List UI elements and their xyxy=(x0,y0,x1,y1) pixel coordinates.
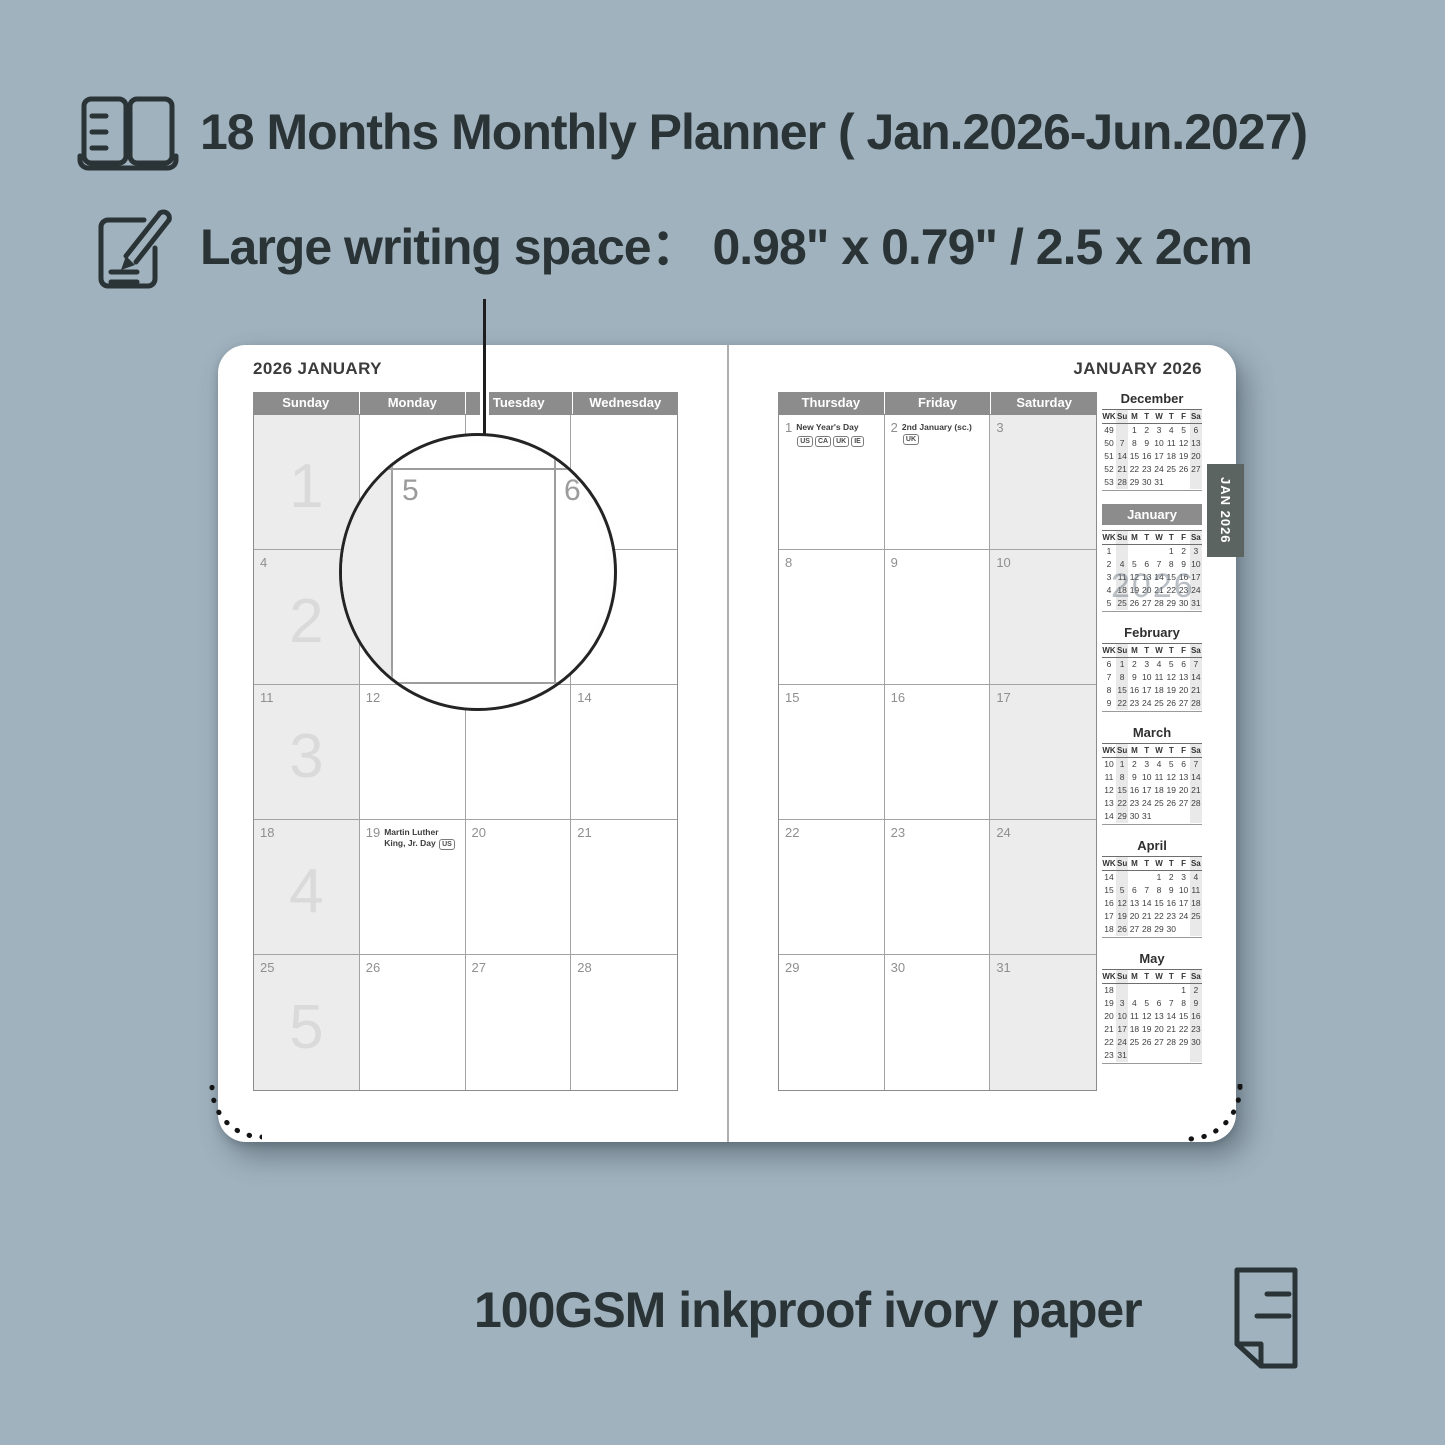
mini-day-cell: 4 xyxy=(1153,758,1165,771)
mini-week-row: 15567891011 xyxy=(1102,884,1202,897)
mini-week-row: 18 12 xyxy=(1102,984,1202,997)
calendar-cell: 9 xyxy=(885,550,991,685)
mini-day-cell: 29 xyxy=(1153,923,1165,936)
mini-day-cell xyxy=(1141,1049,1153,1062)
mini-day-cell: 28 xyxy=(1190,697,1202,710)
mini-weekday-label: M xyxy=(1128,410,1140,423)
mini-weekday-label: F xyxy=(1177,970,1189,983)
mini-weekday-label: T xyxy=(1141,857,1153,870)
mini-week-row: 5221222324252627 xyxy=(1102,463,1202,476)
holiday-badges: UK xyxy=(902,433,920,443)
mini-week-row: 2010111213141516 xyxy=(1102,1010,1202,1023)
mini-day-cell: 9 xyxy=(1165,884,1177,897)
mini-weekday-label: WK xyxy=(1102,857,1116,870)
mini-day-cell: 16 xyxy=(1165,897,1177,910)
mini-day-cell: 4 xyxy=(1128,997,1140,1010)
country-badge: UK xyxy=(903,434,919,445)
mini-day-cell: 24 xyxy=(1153,463,1165,476)
mini-weekday-label: Su xyxy=(1116,857,1128,870)
holiday-name: Martin Luther King, Jr. Day xyxy=(384,827,438,848)
mini-day-cell: 25 xyxy=(1165,463,1177,476)
mini-weekday-label: F xyxy=(1177,744,1189,757)
date-number: 1 xyxy=(785,420,792,435)
day-header-cell: Monday xyxy=(360,392,466,414)
mini-weekday-label: Su xyxy=(1116,970,1128,983)
holiday-name: 2nd January (sc.) xyxy=(902,422,972,432)
mini-day-cell: 14 xyxy=(1190,671,1202,684)
mini-day-cell: 1 xyxy=(1128,424,1140,437)
mini-day-cell: 19 xyxy=(1141,1023,1153,1036)
right-page-title: JANUARY 2026 xyxy=(778,359,1202,379)
mini-day-cell: 10 xyxy=(1141,671,1153,684)
calendar-cell: 19Martin Luther King, Jr. Day US xyxy=(360,820,466,955)
date-number: 23 xyxy=(891,825,905,840)
mini-day-cell: 2 xyxy=(1177,545,1189,558)
mini-week-row: 815161718192021 xyxy=(1102,684,1202,697)
cell-content: 8 xyxy=(779,550,884,570)
date-number: 26 xyxy=(366,960,380,975)
mini-day-cell: 16 xyxy=(1190,1010,1202,1023)
mini-month-title: May xyxy=(1102,951,1202,966)
right-month-grid: ThursdayFridaySaturday 1New Year's DayUS… xyxy=(778,392,1097,1091)
mini-weekday-label: W xyxy=(1153,644,1165,657)
cell-content: 22nd January (sc.) UK xyxy=(885,415,990,445)
mini-day-cell: 14 xyxy=(1141,897,1153,910)
mini-day-cell xyxy=(1128,545,1140,558)
mini-weekday-label: T xyxy=(1141,970,1153,983)
cell-content: 23 xyxy=(885,820,990,840)
mini-week-number: 8 xyxy=(1102,684,1116,697)
mini-week-number: 16 xyxy=(1102,897,1116,910)
mini-day-cell xyxy=(1190,1049,1202,1062)
mini-day-cell: 24 xyxy=(1116,1036,1128,1049)
mini-day-cell xyxy=(1153,1049,1165,1062)
mini-day-cell xyxy=(1165,476,1177,489)
mini-day-cell: 23 xyxy=(1141,463,1153,476)
mini-day-cell: 9 xyxy=(1128,771,1140,784)
cell-content: 15 xyxy=(779,685,884,705)
mini-month-grid: WKSuMTWTFSa49 12345650789101112135114151… xyxy=(1102,409,1202,491)
calendar-cell: 22nd January (sc.) UK xyxy=(885,415,991,550)
mini-day-cell xyxy=(1141,545,1153,558)
mini-day-cell: 19 xyxy=(1177,450,1189,463)
mini-day-cell: 15 xyxy=(1153,897,1165,910)
date-number: 30 xyxy=(891,960,905,975)
mini-month: AprilWKSuMTWTFSa14 123415567891011161213… xyxy=(1102,838,1202,938)
mini-day-cell: 12 xyxy=(1165,771,1177,784)
mini-day-cell: 26 xyxy=(1141,1036,1153,1049)
mini-week-row: 2331 xyxy=(1102,1049,1202,1062)
mini-day-cell: 2 xyxy=(1128,758,1140,771)
mini-day-cell: 31 xyxy=(1116,1049,1128,1062)
mini-weekday-label: WK xyxy=(1102,970,1116,983)
calendar-cell: 15 xyxy=(779,685,885,820)
mini-day-cell: 23 xyxy=(1128,697,1140,710)
mini-day-cell: 1 xyxy=(1116,758,1128,771)
mini-day-cell: 5 xyxy=(1177,424,1189,437)
mini-week-row: 193456789 xyxy=(1102,997,1202,1010)
mini-month-title: February xyxy=(1102,625,1202,640)
mini-day-cell: 12 xyxy=(1141,1010,1153,1023)
mini-day-cell: 29 xyxy=(1116,810,1128,823)
calendar-cell: 10 xyxy=(990,550,1096,685)
mini-weekday-label: Sa xyxy=(1190,857,1202,870)
mini-day-cell: 11 xyxy=(1153,771,1165,784)
mini-week-row: 1215161718192021 xyxy=(1102,784,1202,797)
mini-week-number: 6 xyxy=(1102,658,1116,671)
mini-day-cell: 28 xyxy=(1116,476,1128,489)
date-number: 29 xyxy=(785,960,799,975)
mini-month-grid: WKSuMTWTFSa10123456711891011121314121516… xyxy=(1102,743,1202,825)
mini-day-cell: 17 xyxy=(1116,1023,1128,1036)
date-number: 19 xyxy=(366,825,380,840)
mini-week-row: 101234567 xyxy=(1102,758,1202,771)
mini-weekday-label: M xyxy=(1128,644,1140,657)
mini-day-cell: 8 xyxy=(1177,997,1189,1010)
mini-day-cell: 3 xyxy=(1141,658,1153,671)
mini-calendar-sidebar: DecemberWKSuMTWTFSa49 123456507891011121… xyxy=(1102,389,1202,1077)
mini-week-number: 13 xyxy=(1102,797,1116,810)
calendar-cell: 8 xyxy=(779,550,885,685)
mini-day-cell: 17 xyxy=(1141,684,1153,697)
paper-sheet-icon xyxy=(1227,1266,1305,1372)
mini-weekday-label: W xyxy=(1153,410,1165,423)
mini-day-cell: 21 xyxy=(1190,784,1202,797)
mini-day-cell: 24 xyxy=(1141,697,1153,710)
cell-content: 17 xyxy=(990,685,1096,705)
mini-day-cell: 30 xyxy=(1128,810,1140,823)
day-header-cell: Friday xyxy=(885,392,991,414)
mini-day-cell: 5 xyxy=(1141,997,1153,1010)
holiday-label: 2nd January (sc.) UK xyxy=(902,420,984,445)
mini-week-number: 52 xyxy=(1102,463,1116,476)
mini-day-cell xyxy=(1116,871,1128,884)
mini-week-number: 23 xyxy=(1102,1049,1116,1062)
mini-day-cell: 18 xyxy=(1153,684,1165,697)
mini-day-cell: 23 xyxy=(1128,797,1140,810)
mini-day-cell: 11 xyxy=(1190,884,1202,897)
mini-day-cell: 11 xyxy=(1165,437,1177,450)
calendar-cell: 22 xyxy=(779,820,885,955)
mini-weekday-label: WK xyxy=(1102,744,1116,757)
mini-weekday-label: M xyxy=(1128,970,1140,983)
mini-day-cell: 1 xyxy=(1177,984,1189,997)
mini-day-cell xyxy=(1177,923,1189,936)
mini-week-number: 17 xyxy=(1102,910,1116,923)
cell-content xyxy=(360,415,465,420)
mini-day-cell: 12 xyxy=(1116,897,1128,910)
mini-day-cell: 13 xyxy=(1153,1010,1165,1023)
date-number: 25 xyxy=(260,960,274,975)
mini-weekday-label: T xyxy=(1141,410,1153,423)
mini-weekday-label: T xyxy=(1165,744,1177,757)
mini-weekday-label: Su xyxy=(1116,410,1128,423)
mini-day-cell: 17 xyxy=(1177,897,1189,910)
date-number: 10 xyxy=(996,555,1010,570)
mini-day-cell: 13 xyxy=(1177,671,1189,684)
calendar-cell: 29 xyxy=(779,955,885,1090)
calendar-cell: 30 xyxy=(885,955,991,1090)
mini-day-cell xyxy=(1116,545,1128,558)
mini-month-title: March xyxy=(1102,725,1202,740)
mini-day-cell: 15 xyxy=(1116,784,1128,797)
mini-weekday-label: W xyxy=(1153,744,1165,757)
mini-day-cell: 29 xyxy=(1177,1036,1189,1049)
mini-day-cell: 16 xyxy=(1141,450,1153,463)
mini-month: MarchWKSuMTWTFSa101234567118910111213141… xyxy=(1102,725,1202,825)
mini-day-cell: 24 xyxy=(1141,797,1153,810)
mini-weekday-header: WKSuMTWTFSa xyxy=(1102,530,1202,545)
cell-content: 16 xyxy=(885,685,990,705)
cell-content: 24 xyxy=(990,820,1096,840)
mini-day-cell: 17 xyxy=(1153,450,1165,463)
mini-week-row: 182627282930 xyxy=(1102,923,1202,936)
mini-weekday-label: M xyxy=(1128,531,1140,544)
mini-weekday-header: WKSuMTWTFSa xyxy=(1102,743,1202,758)
mini-day-cell: 15 xyxy=(1116,684,1128,697)
mini-day-cell: 25 xyxy=(1153,797,1165,810)
mini-day-cell: 25 xyxy=(1153,697,1165,710)
country-badge: US xyxy=(797,436,813,447)
mini-week-number: 14 xyxy=(1102,871,1116,884)
mini-weekday-header: WKSuMTWTFSa xyxy=(1102,969,1202,984)
mini-day-cell: 10 xyxy=(1116,1010,1128,1023)
mini-day-cell: 21 xyxy=(1165,1023,1177,1036)
holiday-label: New Year's DayUSCAUKIE xyxy=(796,420,865,447)
mini-weekday-label: WK xyxy=(1102,644,1116,657)
mini-day-cell: 3 xyxy=(1153,424,1165,437)
mini-week-row: 5328293031 xyxy=(1102,476,1202,489)
calendar-cell: 20 xyxy=(466,820,572,955)
calendar-cell: 16 xyxy=(885,685,991,820)
planner-product-image: 18 Months Monthly Planner ( Jan.2026-Jun… xyxy=(0,0,1445,1445)
mini-day-cell: 6 xyxy=(1153,997,1165,1010)
mini-day-cell: 23 xyxy=(1165,910,1177,923)
mini-day-cell xyxy=(1116,984,1128,997)
mini-day-cell: 4 xyxy=(1165,424,1177,437)
mini-week-number: 18 xyxy=(1102,923,1116,936)
mini-weekday-label: Sa xyxy=(1190,644,1202,657)
mini-day-cell: 3 xyxy=(1116,997,1128,1010)
holiday-badges: USCAUKIE xyxy=(796,435,865,447)
mini-day-cell: 14 xyxy=(1116,450,1128,463)
mini-week-number: 15 xyxy=(1102,884,1116,897)
mini-month: FebruaryWKSuMTWTFSa612345677891011121314… xyxy=(1102,625,1202,712)
mini-day-cell: 27 xyxy=(1128,923,1140,936)
mini-month-title: December xyxy=(1102,391,1202,406)
mini-week-row: 14 1234 xyxy=(1102,871,1202,884)
mini-day-cell: 27 xyxy=(1177,797,1189,810)
mini-day-cell: 8 xyxy=(1128,437,1140,450)
mini-week-row: 2117181920212223 xyxy=(1102,1023,1202,1036)
mini-weekday-label: T xyxy=(1165,410,1177,423)
cell-content: 19Martin Luther King, Jr. Day US xyxy=(360,820,465,850)
mini-day-cell: 20 xyxy=(1153,1023,1165,1036)
mini-weekday-header: WKSuMTWTFSa xyxy=(1102,409,1202,424)
left-day-header-row: SundayMondayTuesdayWednesday xyxy=(253,392,678,414)
mini-day-cell: 2 xyxy=(1141,424,1153,437)
mini-day-cell: 20 xyxy=(1177,784,1189,797)
date-number: 17 xyxy=(996,690,1010,705)
mini-weekday-label: Su xyxy=(1116,744,1128,757)
cell-content: 22 xyxy=(779,820,884,840)
date-number: 27 xyxy=(472,960,486,975)
mini-day-cell: 22 xyxy=(1177,1023,1189,1036)
mini-day-cell: 12 xyxy=(1165,671,1177,684)
date-number: 11 xyxy=(260,690,274,705)
cell-content xyxy=(466,415,571,420)
mini-day-cell: 16 xyxy=(1128,684,1140,697)
mini-day-cell: 10 xyxy=(1153,437,1165,450)
day-header-cell: Wednesday xyxy=(573,392,679,414)
calendar-cell: 184 xyxy=(254,820,360,955)
calendar-cell: 3 xyxy=(990,415,1096,550)
cell-content: 3 xyxy=(990,415,1096,435)
week-number: 5 xyxy=(254,991,359,1062)
mini-week-number: 49 xyxy=(1102,424,1116,437)
mini-day-cell xyxy=(1153,810,1165,823)
cell-content: 26 xyxy=(360,955,465,975)
mini-day-cell: 8 xyxy=(1153,884,1165,897)
mini-day-cell: 7 xyxy=(1190,758,1202,771)
mini-weekday-label: T xyxy=(1165,970,1177,983)
mini-day-cell: 30 xyxy=(1165,923,1177,936)
mini-week-number: 21 xyxy=(1102,1023,1116,1036)
mini-day-cell: 27 xyxy=(1153,1036,1165,1049)
mini-month-title: January xyxy=(1102,504,1202,525)
mini-week-number: 11 xyxy=(1102,771,1116,784)
mini-day-cell: 21 xyxy=(1141,910,1153,923)
mini-week-row: 49 123456 xyxy=(1102,424,1202,437)
mini-week-number: 20 xyxy=(1102,1010,1116,1023)
mini-day-cell: 31 xyxy=(1141,810,1153,823)
mini-day-cell: 30 xyxy=(1141,476,1153,489)
mini-day-cell: 14 xyxy=(1190,771,1202,784)
mini-day-cell: 31 xyxy=(1153,476,1165,489)
year-watermark: 2026 xyxy=(1111,567,1195,606)
calendar-cell: 27 xyxy=(466,955,572,1090)
mini-day-cell: 13 xyxy=(1177,771,1189,784)
date-number: 31 xyxy=(996,960,1010,975)
mini-day-cell: 13 xyxy=(1190,437,1202,450)
cell-content: 14 xyxy=(571,685,677,705)
month-tab: JAN 2026 xyxy=(1207,464,1244,557)
date-number: 21 xyxy=(577,825,591,840)
mini-day-cell: 15 xyxy=(1128,450,1140,463)
mini-day-cell: 8 xyxy=(1116,771,1128,784)
magnifier-callout-line xyxy=(483,299,486,345)
day-header-cell: Saturday xyxy=(991,392,1097,414)
mini-day-cell xyxy=(1153,984,1165,997)
mini-weekday-header: WKSuMTWTFSa xyxy=(1102,643,1202,658)
mini-weekday-label: F xyxy=(1177,531,1189,544)
mini-day-cell: 25 xyxy=(1128,1036,1140,1049)
cell-content: 29 xyxy=(779,955,884,975)
mini-weekday-label: F xyxy=(1177,857,1189,870)
mini-day-cell: 8 xyxy=(1116,671,1128,684)
date-number: 28 xyxy=(577,960,591,975)
mini-weekday-label: W xyxy=(1153,970,1165,983)
mini-week-number: 7 xyxy=(1102,671,1116,684)
mini-day-cell: 19 xyxy=(1165,684,1177,697)
mini-week-number: 14 xyxy=(1102,810,1116,823)
mini-week-row: 5078910111213 xyxy=(1102,437,1202,450)
mini-day-cell: 22 xyxy=(1153,910,1165,923)
calendar-cell: 23 xyxy=(885,820,991,955)
mini-week-number: 9 xyxy=(1102,697,1116,710)
mini-day-cell: 9 xyxy=(1190,997,1202,1010)
mini-day-cell xyxy=(1128,1049,1140,1062)
right-grid-body: 1New Year's DayUSCAUKIE22nd January (sc.… xyxy=(778,414,1097,1091)
cell-content: 20 xyxy=(466,820,571,840)
mini-week-row: 1 123 xyxy=(1102,545,1202,558)
mini-day-cell: 10 xyxy=(1141,771,1153,784)
cell-content: 9 xyxy=(885,550,990,570)
dotted-arc-bottom-right xyxy=(1186,1084,1246,1144)
day-header-cell: Tuesday xyxy=(466,392,572,414)
mini-week-row: 5114151617181920 xyxy=(1102,450,1202,463)
mini-week-row: 11891011121314 xyxy=(1102,771,1202,784)
week-number: 3 xyxy=(254,721,359,792)
mini-week-row: 7891011121314 xyxy=(1102,671,1202,684)
mini-week-row: 61234567 xyxy=(1102,658,1202,671)
mini-week-row: 2224252627282930 xyxy=(1102,1036,1202,1049)
mini-day-cell xyxy=(1190,923,1202,936)
country-badge: US xyxy=(439,839,455,850)
country-badge: IE xyxy=(851,436,864,447)
feature-writing-space-text: Large writing space： 0.98" x 0.79" / 2.5… xyxy=(200,217,1252,277)
day-header-cell: Thursday xyxy=(778,392,884,414)
day-header-cell: Sunday xyxy=(253,392,359,414)
mini-day-cell: 4 xyxy=(1153,658,1165,671)
mini-day-cell: 21 xyxy=(1190,684,1202,697)
mini-day-cell: 19 xyxy=(1116,910,1128,923)
mini-day-cell: 26 xyxy=(1165,697,1177,710)
feature-months-text: 18 Months Monthly Planner ( Jan.2026-Jun… xyxy=(200,102,1307,162)
mini-day-cell: 5 xyxy=(1165,658,1177,671)
mini-day-cell: 20 xyxy=(1128,910,1140,923)
date-number: 24 xyxy=(996,825,1010,840)
mini-day-cell: 21 xyxy=(1116,463,1128,476)
mini-weekday-label: Sa xyxy=(1190,410,1202,423)
mini-month-grid: WKSuMTWTFSa14 12341556789101116121314151… xyxy=(1102,856,1202,938)
mini-day-cell: 20 xyxy=(1190,450,1202,463)
mini-day-cell: 15 xyxy=(1177,1010,1189,1023)
cell-content: 30 xyxy=(885,955,990,975)
mini-week-number: 53 xyxy=(1102,476,1116,489)
mini-day-cell xyxy=(1128,984,1140,997)
mini-day-cell: 13 xyxy=(1128,897,1140,910)
mini-weekday-label: T xyxy=(1165,644,1177,657)
dotted-arc-bottom-left xyxy=(204,1084,262,1142)
mini-day-cell xyxy=(1128,871,1140,884)
mini-weekday-label: Su xyxy=(1116,531,1128,544)
mini-day-cell xyxy=(1177,1049,1189,1062)
mini-weekday-label: Sa xyxy=(1190,744,1202,757)
mini-weekday-label: WK xyxy=(1102,410,1116,423)
date-number: 15 xyxy=(785,690,799,705)
mini-weekday-label: M xyxy=(1128,857,1140,870)
calendar-cell: 21 xyxy=(571,820,677,955)
mini-day-cell: 1 xyxy=(1116,658,1128,671)
mini-week-number: 51 xyxy=(1102,450,1116,463)
mini-week-row: 14293031 xyxy=(1102,810,1202,823)
mini-day-cell: 9 xyxy=(1141,437,1153,450)
mini-day-cell: 10 xyxy=(1177,884,1189,897)
mini-week-number: 10 xyxy=(1102,758,1116,771)
holiday-label: Martin Luther King, Jr. Day US xyxy=(384,825,459,850)
mini-weekday-label: Sa xyxy=(1190,531,1202,544)
